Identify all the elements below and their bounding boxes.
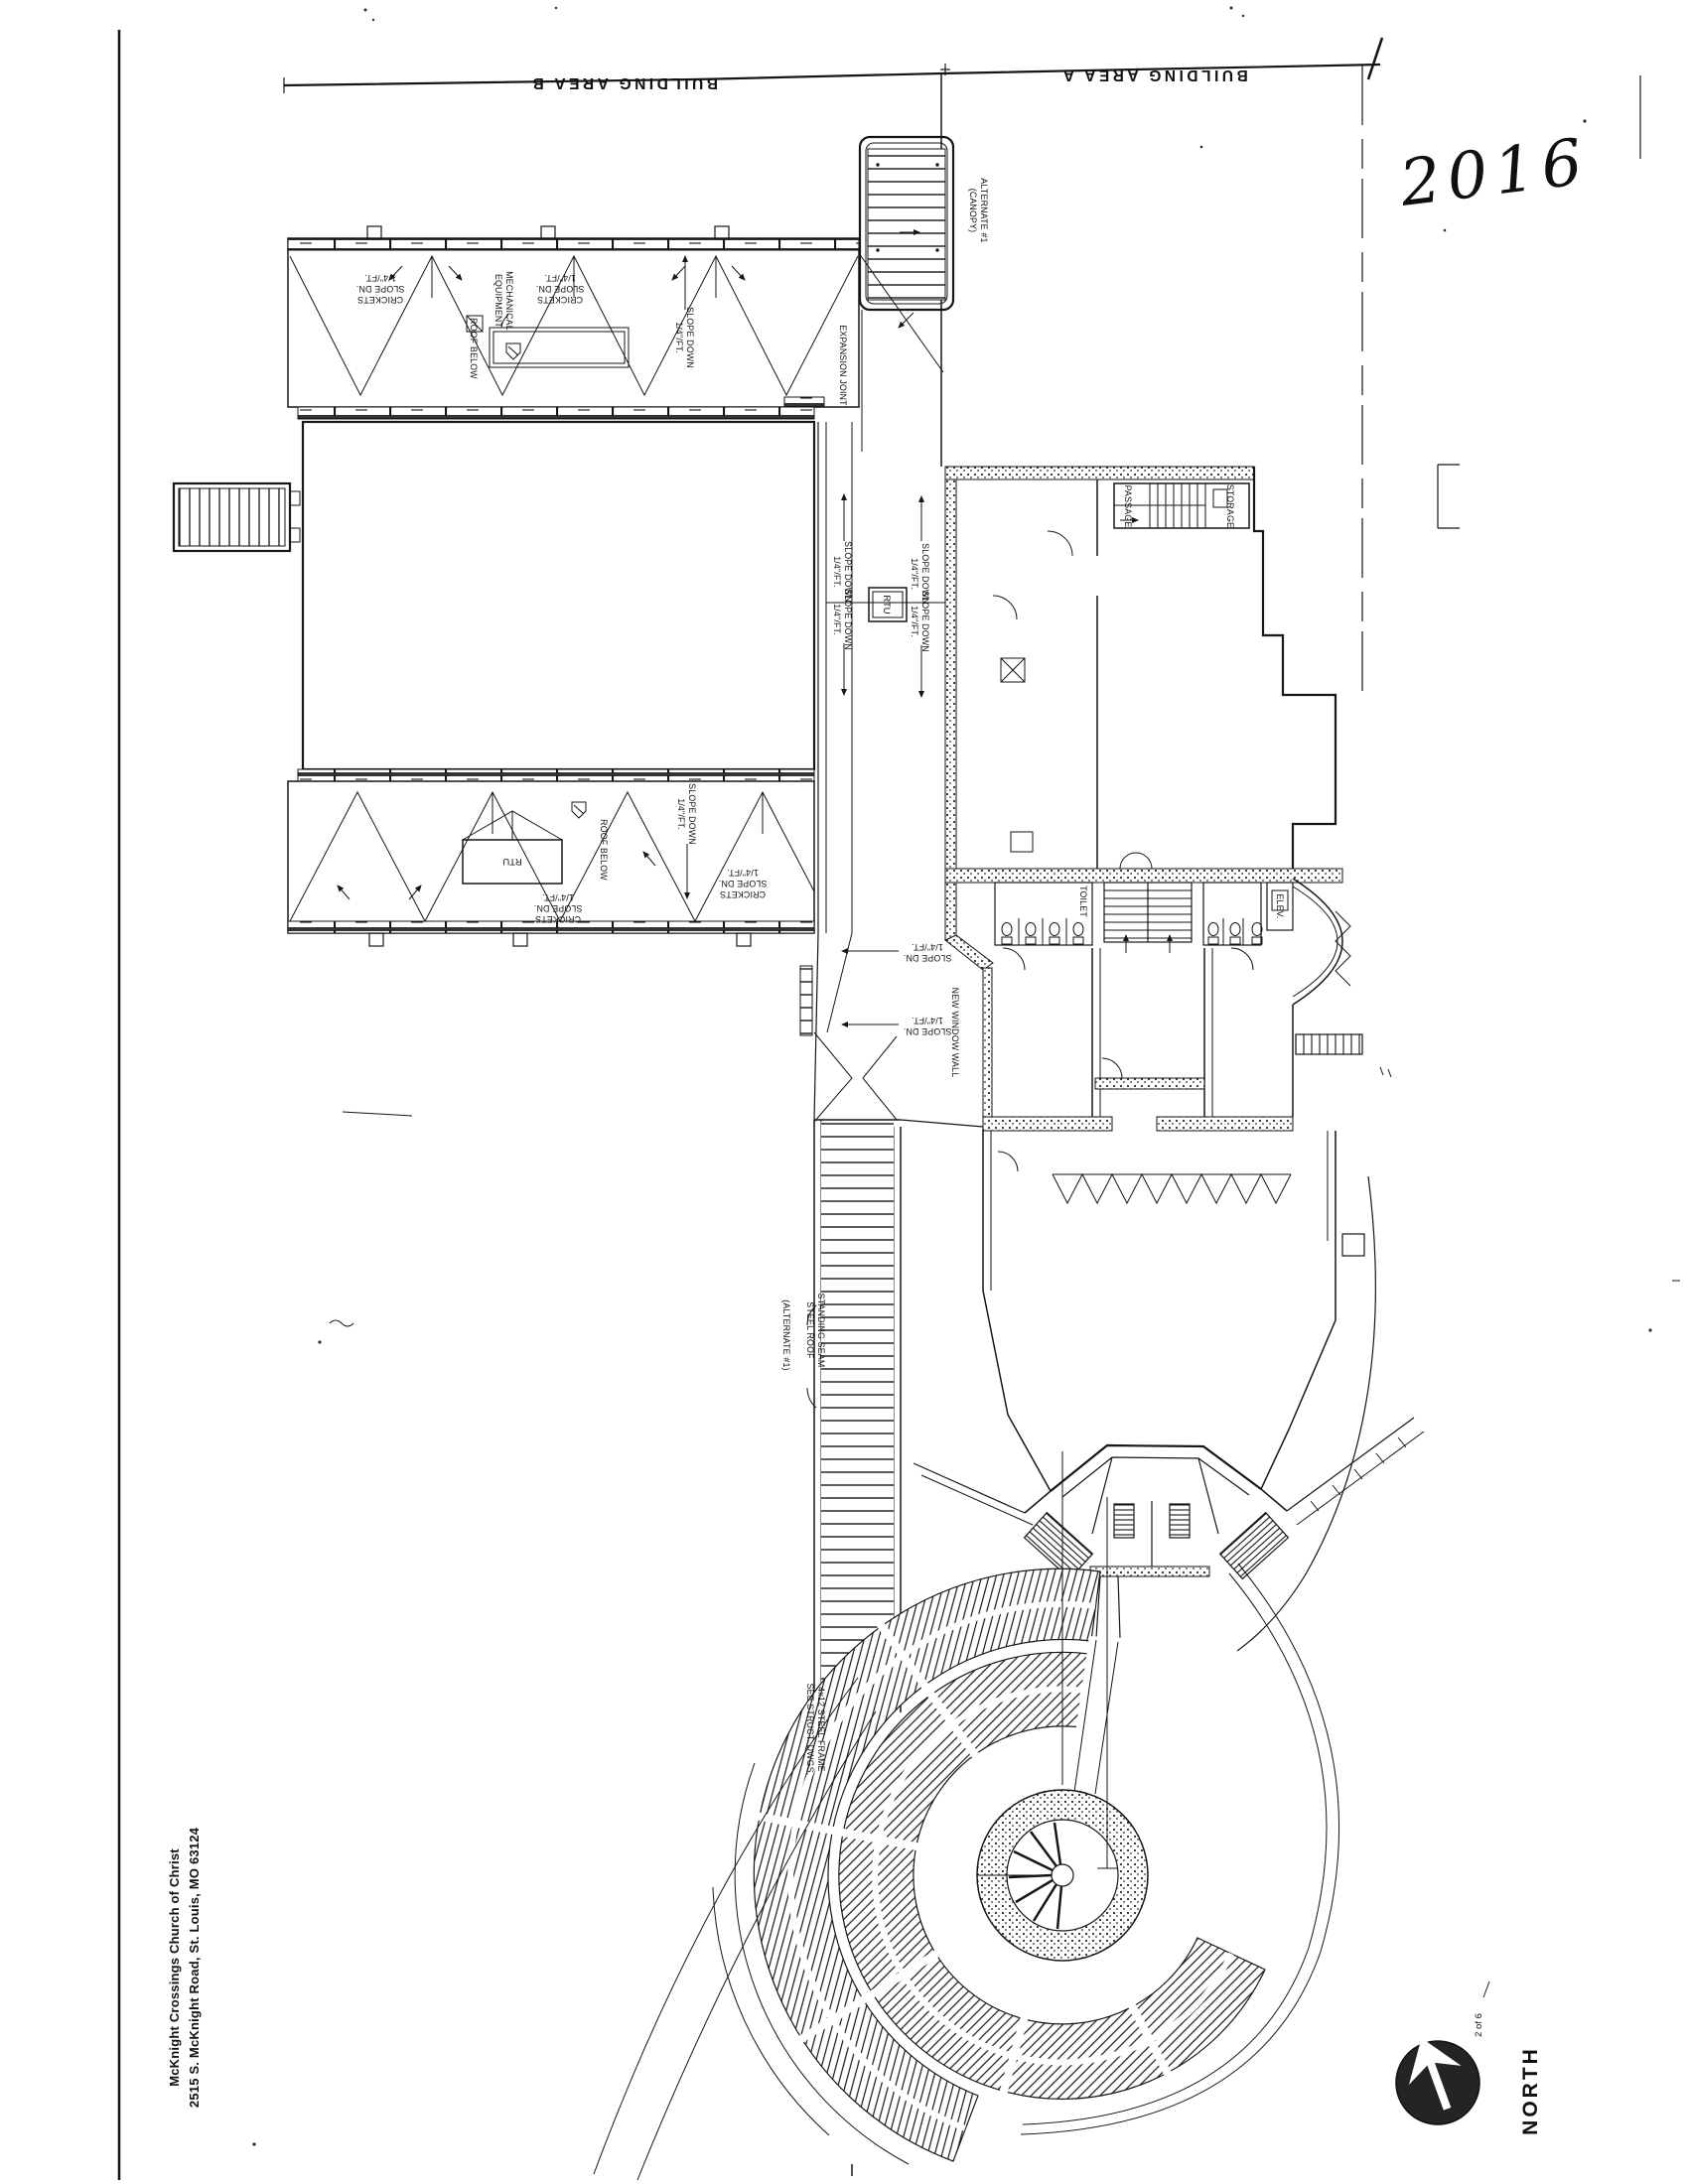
scanned-floorplan-sheet: BUILDING AREA B BUILDING AREA A 2016 CRI… xyxy=(0,0,1688,2184)
stair-center-right xyxy=(1170,1504,1190,1538)
svg-text:ROOF BELOW: ROOF BELOW xyxy=(469,318,479,379)
label-rtu-2: RTU xyxy=(881,595,892,614)
title-line2: 2515 S. McKnight Road, St. Louis, MO 631… xyxy=(187,1827,202,2108)
label-steel-frame: 4x12 STEEL FRAME SEE STRUCT. DWGS. xyxy=(805,1684,826,1776)
svg-text:(CANOPY): (CANOPY) xyxy=(968,189,978,233)
title-block: McKnight Crossings Church of Christ 2515… xyxy=(167,1827,202,2108)
building-b-roof-plan xyxy=(174,226,859,946)
roof-drain-symbol xyxy=(572,802,586,818)
svg-text:1/4"/FT.: 1/4"/FT. xyxy=(912,1016,943,1025)
canopy-alternate-1 xyxy=(860,137,953,310)
svg-text:1/4"/FT.: 1/4"/FT. xyxy=(674,322,684,353)
assembly-hall xyxy=(983,1129,1364,1491)
svg-text:ALTERNATE #1: ALTERNATE #1 xyxy=(979,178,989,242)
floor-plan-drawing: BUILDING AREA B BUILDING AREA A 2016 CRI… xyxy=(0,0,1688,2184)
restroom-left xyxy=(995,883,1092,945)
label-slope-down-2: SLOPE DOWN 1/4"/FT. xyxy=(832,589,853,650)
label-slope-dn-2: SLOPE DN. 1/4"/FT. xyxy=(904,1016,952,1036)
roof-drain-symbol xyxy=(506,343,520,359)
sheet-note: 2 of 6 xyxy=(1474,2013,1484,2037)
label-mechanical-equipment: MECHANICAL EQUIPMENT xyxy=(493,271,514,331)
svg-text:1/4"/FT.: 1/4"/FT. xyxy=(832,556,842,588)
label-stor: STORAGE xyxy=(1225,484,1235,528)
svg-text:CRICKETS: CRICKETS xyxy=(535,914,581,924)
svg-text:1/4"/FT.: 1/4"/FT. xyxy=(542,892,574,902)
svg-text:1/4"/FT.: 1/4"/FT. xyxy=(364,273,396,283)
svg-text:SLOPE DOWN: SLOPE DOWN xyxy=(687,783,697,845)
label-slope-down-4: SLOPE DOWN 1/4"/FT. xyxy=(910,591,930,652)
svg-text:CRICKETS: CRICKETS xyxy=(720,889,766,899)
building-a-floor-plan xyxy=(945,467,1362,1131)
label-new-window-wall: NEW WINDOW WALL xyxy=(950,988,960,1078)
restroom-right xyxy=(1203,883,1262,945)
svg-text:1/4"/FT.: 1/4"/FT. xyxy=(676,798,686,830)
svg-text:STANDING SEAM: STANDING SEAM xyxy=(816,1294,826,1368)
label-rtu-1: RTU xyxy=(502,856,521,867)
svg-text:1/4"/FT.: 1/4"/FT. xyxy=(727,868,759,878)
svg-text:SLOPE DN.: SLOPE DN. xyxy=(904,1026,952,1036)
svg-text:SLOPE DOWN: SLOPE DOWN xyxy=(920,591,930,652)
label-roof-below-1: ROOF BELOW xyxy=(469,318,479,379)
svg-text:CRICKETS: CRICKETS xyxy=(357,295,403,305)
label-expansion-joint: EXPANSION JOINT xyxy=(838,325,848,406)
label-alternate1-walkway: (ALTERNATE #1) xyxy=(781,1299,791,1370)
label-crickets-2: CRICKETS SLOPE DN. 1/4"/FT. xyxy=(536,273,585,305)
stair-splayed-right xyxy=(1220,1513,1289,1579)
svg-text:1/4"/FT.: 1/4"/FT. xyxy=(544,273,576,283)
label-slope-down-6: SLOPE DOWN 1/4"/FT. xyxy=(676,783,697,845)
label-alternate1-canopy: ALTERNATE #1 (CANOPY) xyxy=(968,178,989,242)
svg-text:SLOPE DOWN: SLOPE DOWN xyxy=(843,589,853,650)
svg-text:SLOPE DN.: SLOPE DN. xyxy=(719,879,768,888)
svg-text:EQUIPMENT: EQUIPMENT xyxy=(493,274,503,329)
border-end-slash xyxy=(1368,38,1382,79)
label-elev: ELEV. xyxy=(1275,893,1285,918)
label-slope-dn-1: SLOPE DN. 1/4"/FT. xyxy=(904,942,952,963)
svg-text:SLOPE DN.: SLOPE DN. xyxy=(904,953,952,963)
label-roof-below-2: ROOF BELOW xyxy=(599,819,609,881)
label-passage: PASSAGE xyxy=(1123,485,1133,528)
exit-steps-east xyxy=(1296,1034,1362,1054)
svg-text:SLOPE DN.: SLOPE DN. xyxy=(534,903,583,913)
label-crickets-4: CRICKETS SLOPE DN. 1/4"/FT. xyxy=(719,868,768,899)
svg-text:SLOPE DN.: SLOPE DN. xyxy=(356,284,405,294)
svg-text:1/4"/FT.: 1/4"/FT. xyxy=(832,604,842,635)
handwritten-year: 2016 xyxy=(1395,125,1593,221)
svg-text:1/4"/FT.: 1/4"/FT. xyxy=(912,942,943,952)
title-line1: McKnight Crossings Church of Christ xyxy=(167,1848,182,2087)
svg-text:1/4"/FT.: 1/4"/FT. xyxy=(910,558,919,590)
label-standing-seam: STANDING SEAM STEEL ROOF xyxy=(805,1294,826,1368)
north-label: NORTH xyxy=(1519,2046,1542,2135)
svg-text:STEEL ROOF: STEEL ROOF xyxy=(805,1301,815,1359)
svg-text:SEE STRUCT. DWGS.: SEE STRUCT. DWGS. xyxy=(805,1684,815,1776)
svg-text:CRICKETS: CRICKETS xyxy=(537,295,583,305)
north-arrow xyxy=(1395,1981,1489,2124)
central-stair xyxy=(1104,883,1192,953)
bracket-mark xyxy=(1438,465,1460,528)
rtu-unit-gabled xyxy=(463,811,562,884)
svg-text:EXPANSION JOINT: EXPANSION JOINT xyxy=(838,325,848,406)
exterior-stair-west xyxy=(174,483,300,551)
building-area-a-label: BUILDING AREA A xyxy=(1059,67,1247,83)
svg-text:ROOF BELOW: ROOF BELOW xyxy=(599,819,609,881)
label-crickets-1: CRICKETS SLOPE DN. 1/4"/FT. xyxy=(356,273,405,305)
svg-text:1/4"/FT.: 1/4"/FT. xyxy=(910,606,919,637)
svg-text:MECHANICAL: MECHANICAL xyxy=(504,271,514,331)
stair-center-left xyxy=(1114,1504,1134,1538)
building-area-b-label: BUILDING AREA B xyxy=(529,74,718,91)
svg-text:SLOPE DOWN: SLOPE DOWN xyxy=(685,307,695,368)
accordion-partition xyxy=(1053,1174,1291,1203)
svg-text:SLOPE DN.: SLOPE DN. xyxy=(536,284,585,294)
svg-text:4x12 STEEL FRAME: 4x12 STEEL FRAME xyxy=(816,1687,826,1772)
label-crickets-3: CRICKETS SLOPE DN. 1/4"/FT. xyxy=(534,892,583,924)
label-toilet: TOILET xyxy=(1078,886,1088,917)
amphitheater-fan xyxy=(713,1451,1265,2176)
